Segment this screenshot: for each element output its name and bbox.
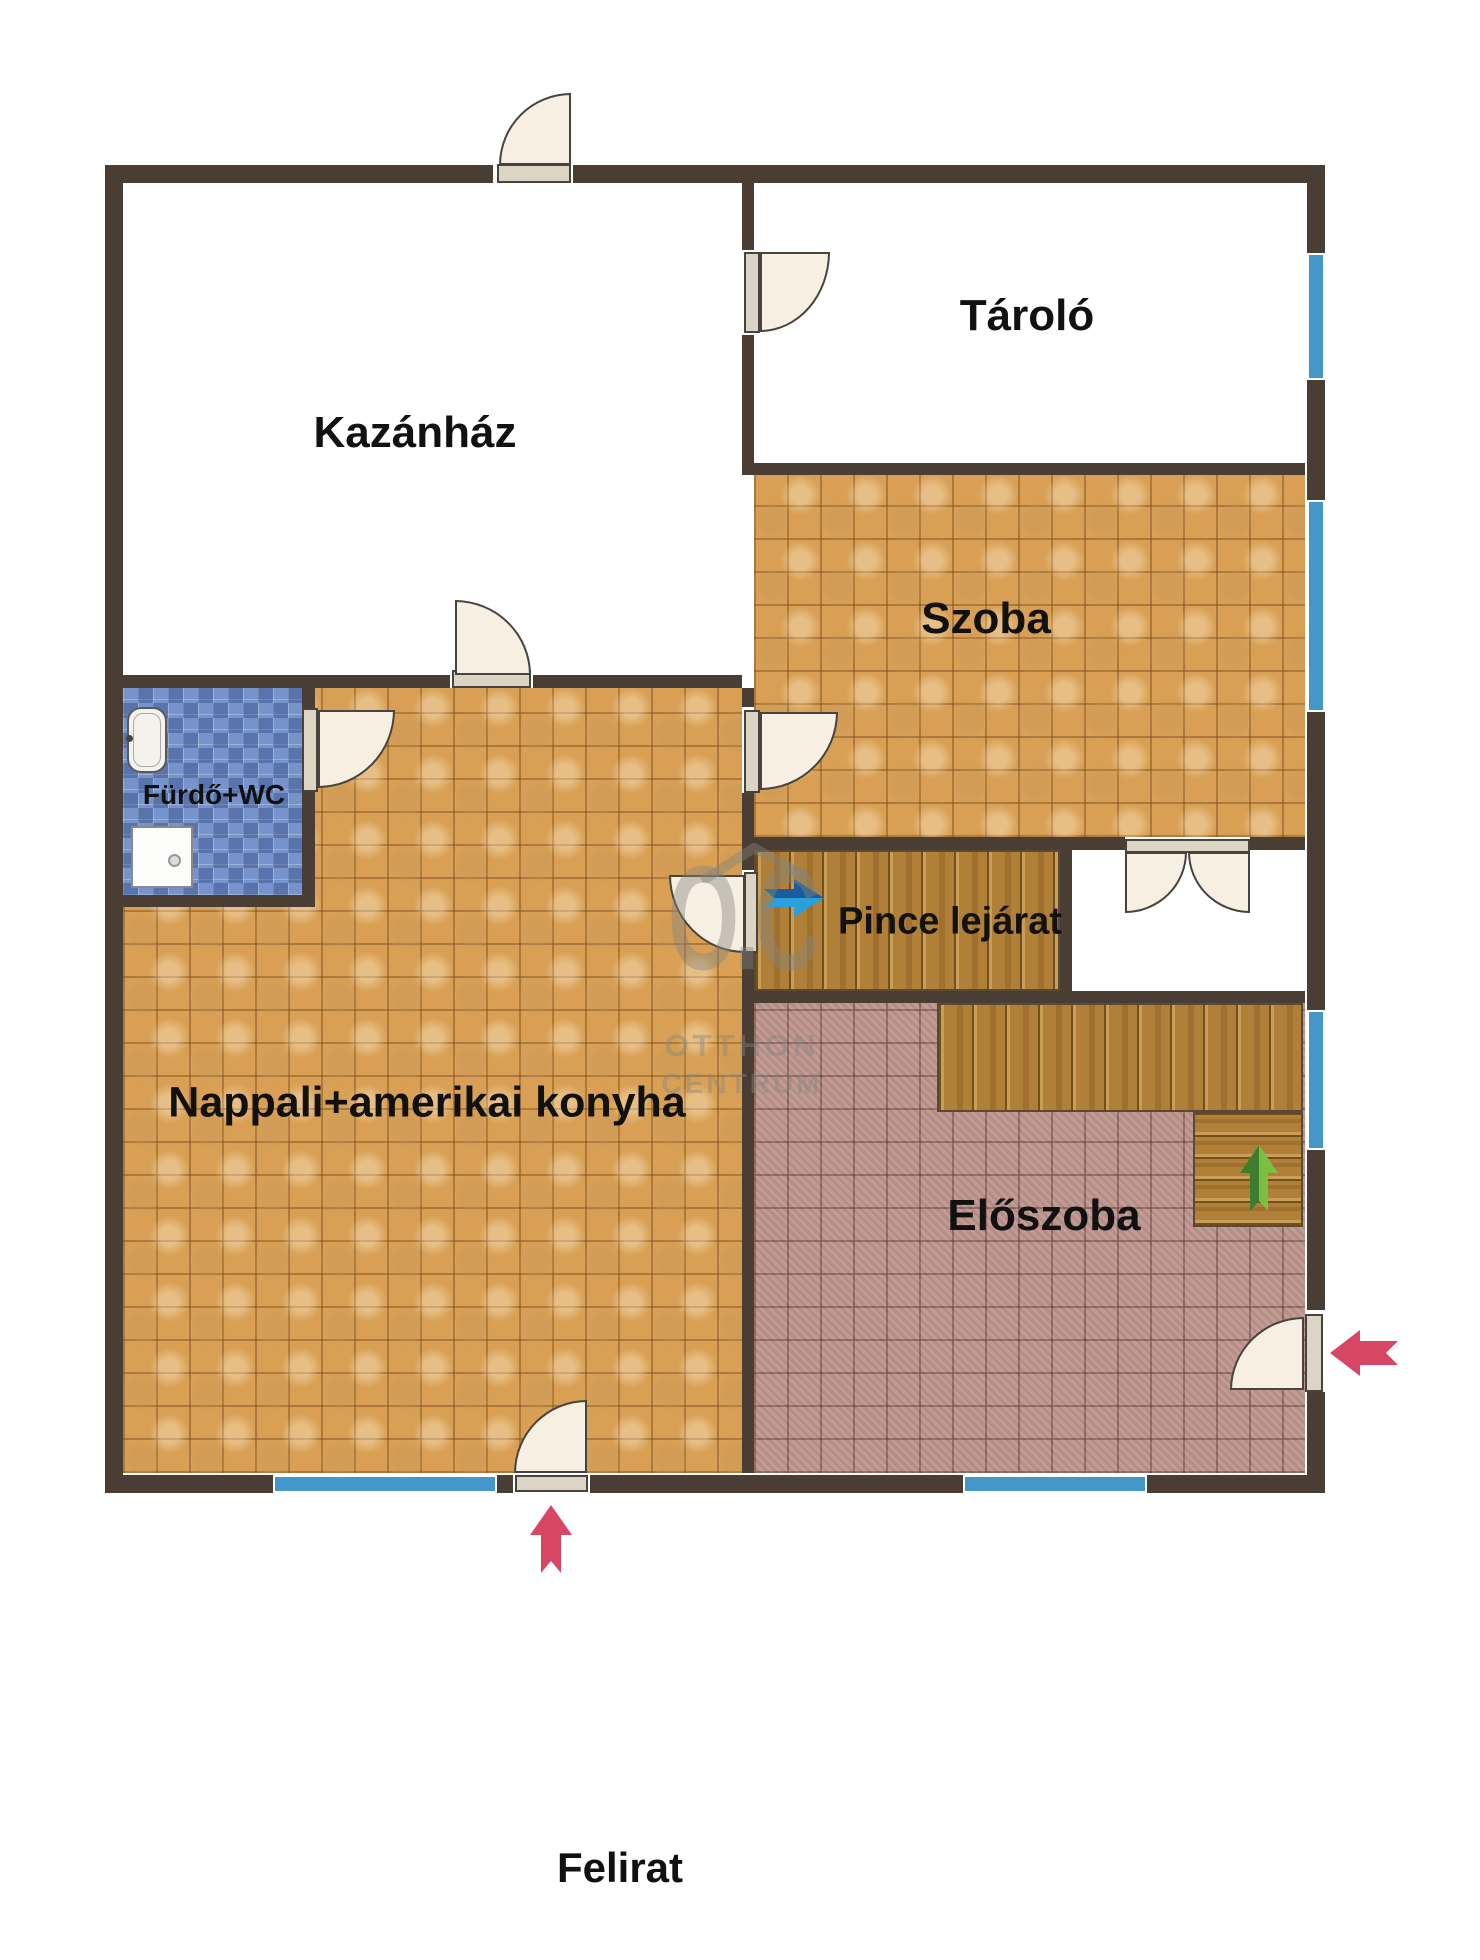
floor-plan: O.C OTTHON CENTRUM Kazánház Tároló Szoba… (0, 0, 1480, 1960)
window-nappali-bottom (273, 1475, 497, 1493)
wall-right-2 (1307, 380, 1325, 500)
szoba-floor (754, 475, 1305, 837)
wall-kazanhaz-tarolo-b (742, 335, 754, 463)
caption-text: Felirat (557, 1844, 683, 1892)
wall-right-5 (1307, 1392, 1325, 1493)
kazanhaz-label: Kazánház (314, 408, 517, 458)
eloszoba-label: Előszoba (947, 1191, 1140, 1241)
pince-lejarat-label: Pince lejárat (838, 901, 1062, 944)
entrance-arrow-up-icon (530, 1505, 572, 1573)
window-eloszoba-bottom (963, 1475, 1147, 1493)
watermark-line1: OTTHON (665, 1028, 820, 1064)
bathtub (127, 707, 167, 773)
closet-floor (1072, 850, 1303, 991)
wall-left (105, 165, 123, 1493)
wall-stairs-bottom (742, 991, 1305, 1003)
wall-right-1 (1307, 165, 1325, 253)
wall-bottom-3 (590, 1475, 963, 1493)
door-kazanhaz-exterior-swing (499, 93, 571, 165)
szoba-label: Szoba (921, 594, 1051, 644)
double-door-slab (1125, 839, 1250, 853)
wall-kazanhaz-nappali-b (533, 675, 742, 688)
wall-right-3 (1307, 712, 1325, 1010)
door-kazanhaz-exterior-slab (497, 164, 571, 183)
door-bathroom-slab (302, 708, 318, 792)
wall-bottom-4 (1147, 1475, 1325, 1493)
furdo-wc-label: Fürdő+WC (143, 779, 285, 811)
wall-kazanhaz-tarolo-a (742, 183, 754, 250)
tarolo-label: Tároló (960, 291, 1094, 341)
wall-tarolo-szoba (742, 463, 1305, 475)
door-szoba-slab (744, 710, 760, 793)
door-nappali-exterior-slab (515, 1475, 588, 1492)
upper-stairs-flight (937, 1003, 1303, 1112)
wall-bathroom-right-b (302, 792, 315, 907)
shower-tray (131, 826, 193, 888)
nappali-label: Nappali+amerikai konyha (168, 1079, 685, 1128)
entrance-arrow-left-icon (1330, 1330, 1398, 1376)
bathtub-faucet (126, 735, 133, 742)
window-eloszoba-right (1307, 1010, 1325, 1150)
wall-nappali-szoba-a (742, 688, 754, 707)
door-kazanhaz-tarolo-slab (744, 252, 760, 333)
stairs-up-arrow-icon (1240, 1145, 1278, 1211)
wall-top-right (573, 165, 1325, 183)
wall-bathroom-right-a (302, 688, 315, 708)
watermark-logo: O.C (668, 845, 816, 993)
wall-bathroom-bottom (110, 895, 315, 907)
shower-drain (168, 854, 181, 867)
wall-top-left (105, 165, 493, 183)
window-tarolo (1307, 253, 1325, 380)
entry-door-slab (1305, 1314, 1323, 1392)
window-szoba (1307, 500, 1325, 712)
wall-szoba-bottom-b (1250, 837, 1305, 850)
wall-kazanhaz-nappali-a (123, 675, 450, 688)
wall-bottom-2 (497, 1475, 513, 1493)
wall-right-4 (1307, 1150, 1325, 1310)
wall-bottom-1 (105, 1475, 273, 1493)
